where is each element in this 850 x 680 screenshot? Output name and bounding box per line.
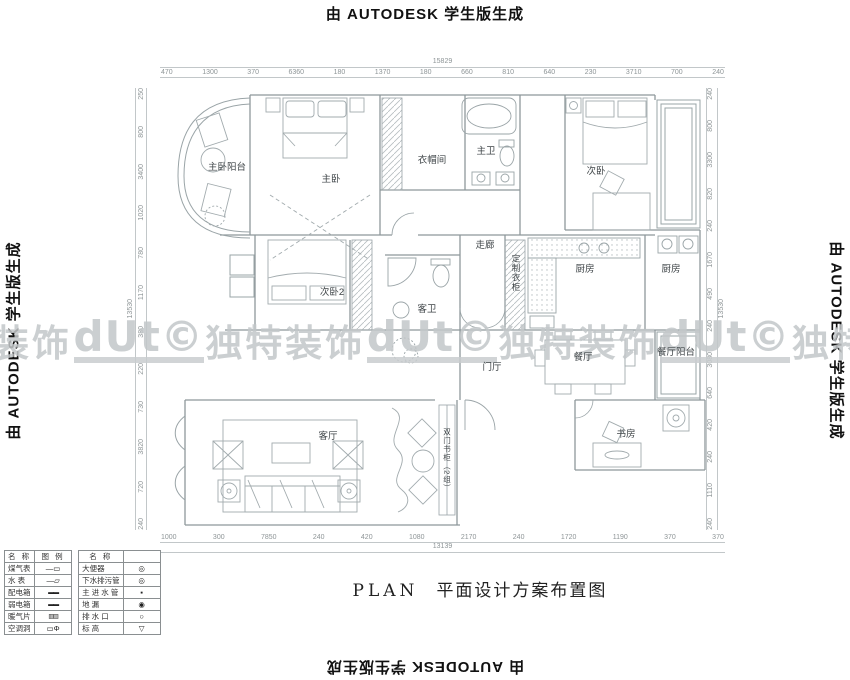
- plant: [392, 338, 416, 362]
- floorplan-drawing: 主卧阳台 主卧 衣帽间 主卫 次卧 走廊 定制衣柜 厨房 厨房 次卧2 客卫 门…: [160, 88, 725, 533]
- legend-header-name: 名 称: [5, 551, 35, 563]
- dimension-value: 810: [501, 69, 515, 77]
- legend-item: 弱电箱: [5, 599, 35, 611]
- dimension-value: 730: [138, 401, 146, 413]
- room-label-study: 书房: [616, 426, 635, 440]
- dimension-bottom-row: 1000300785024042010802170240172011903703…: [160, 533, 725, 543]
- dimension-top-total: 15829: [160, 58, 725, 68]
- dimension-value: 250: [138, 88, 146, 100]
- watermark-autodesk-top: 由 AUTODESK 学生版生成: [0, 3, 850, 24]
- dimension-value: 240: [711, 69, 725, 77]
- dimension-value: 6360: [288, 69, 306, 77]
- living-furniture: [213, 408, 437, 512]
- washbasin: [393, 302, 409, 318]
- pillow: [272, 286, 306, 300]
- dimension-value: 3820: [138, 439, 146, 455]
- room-label-living: 客厅: [318, 428, 337, 442]
- dimension-value: 240: [138, 518, 146, 530]
- legend-item: 配电箱: [5, 587, 35, 599]
- dimension-value: 420: [360, 534, 374, 542]
- floorplan-page: 由 AUTODESK 学生版生成 由 AUTODESK 学生版生成 由 AUTO…: [0, 0, 850, 680]
- dimension-value: 13530: [127, 299, 135, 318]
- drawing-title: PLAN平面设计方案布置图: [110, 576, 850, 601]
- dimension-top-row: 4701300370636018013701806608106402303710…: [160, 68, 725, 78]
- dimension-value: 370: [663, 534, 677, 542]
- ceiling-cross-lines: [270, 195, 370, 260]
- nightstand: [266, 98, 280, 112]
- round-table: [412, 450, 434, 472]
- legend-item: 标 高: [79, 623, 124, 635]
- living-bay-arc-2: [175, 466, 185, 500]
- legend-left-table: 名 称 图 例 煤气表 —▭ 水 表 —▱ 配电箱 ▬▬ 弱电箱 ▬▬ 暖气片 …: [4, 550, 72, 635]
- room-label-guest-bath: 客卫: [417, 301, 436, 315]
- master-bedroom-furniture: [266, 98, 370, 260]
- room-label-kitchen: 厨房: [575, 261, 594, 275]
- living-bay-arc-1: [175, 416, 185, 450]
- room-label-master-bedroom: 主卧: [321, 171, 340, 185]
- bedroom2-furniture: [566, 98, 650, 230]
- legend-header-name2: 名 称: [79, 551, 124, 563]
- dimension-left-total: 13530: [127, 88, 136, 530]
- window-seat-2: [230, 277, 254, 297]
- room-label-dining: 餐厅: [573, 349, 592, 363]
- dimension-value: 300: [212, 534, 226, 542]
- dimension-value: 470: [160, 69, 174, 77]
- sink-right: [679, 236, 698, 253]
- dimension-value: 230: [584, 69, 598, 77]
- toilet: [500, 146, 514, 166]
- dimension-value: 2170: [460, 534, 478, 542]
- room-label-bedroom3: 次卧2: [320, 284, 344, 298]
- room-label-master-bath: 主卫: [476, 143, 495, 157]
- dimension-value: 1370: [374, 69, 392, 77]
- kitchen-fixtures: [528, 236, 698, 328]
- room-label-master-balcony: 主卧阳台: [208, 159, 246, 173]
- dimension-value: 3400: [138, 164, 146, 180]
- watermark-autodesk-bottom: 由 AUTODESK 学生版生成: [0, 657, 850, 678]
- study-desk: [593, 443, 641, 467]
- dimension-value: 240: [312, 534, 326, 542]
- room-label-kitchen-balcony: 厨房: [661, 261, 680, 275]
- legend-item: 大便器: [79, 563, 124, 575]
- balcony-chair: [201, 184, 231, 217]
- dimension-value: 370: [711, 534, 725, 542]
- dimension-value: 180: [333, 69, 347, 77]
- room-label-foyer: 门厅: [482, 359, 501, 373]
- room-label-custom-wardrobe: 定制衣柜: [510, 254, 522, 292]
- dimension-left-row: 2508003400102078011703802207303820720240: [138, 88, 147, 530]
- legend-item: 暖气片: [5, 611, 35, 623]
- dimension-value: 800: [138, 126, 146, 138]
- dimension-value: 220: [138, 363, 146, 375]
- dimension-value: 380: [138, 326, 146, 338]
- dining-chair: [555, 384, 571, 394]
- dimension-value: 240: [512, 534, 526, 542]
- weak-current-box-symbol: ▬▬: [35, 599, 72, 611]
- sink-left: [658, 236, 677, 253]
- dimension-value: 660: [460, 69, 474, 77]
- legend-item: 水 表: [5, 575, 35, 587]
- toilet-symbol: ◎: [123, 563, 160, 575]
- dimensions-top: 15829 4701300370636018013701806608106402…: [160, 58, 725, 78]
- kitchen-counter-top: [528, 238, 640, 258]
- gas-meter-symbol: —▭: [35, 563, 72, 575]
- dimension-value: 370: [246, 69, 260, 77]
- drawing-title-cn: 平面设计方案布置图: [436, 581, 607, 601]
- dimension-value: 1020: [138, 205, 146, 221]
- dining-balcony-window: [657, 332, 700, 398]
- toilet-tank: [431, 259, 450, 265]
- water-meter-symbol: —▱: [35, 575, 72, 587]
- toilet: [433, 265, 449, 287]
- dimension-value: 1720: [560, 534, 578, 542]
- dining-chair: [595, 330, 611, 340]
- dimension-value: 720: [138, 481, 146, 493]
- room-label-cloakroom: 衣帽间: [418, 152, 447, 166]
- dimension-value: 1300: [201, 69, 219, 77]
- kitchen-cabinet: [530, 316, 554, 328]
- pillow: [318, 101, 346, 117]
- dining-chair: [555, 330, 571, 340]
- pillow: [586, 101, 614, 117]
- dimension-value: 180: [419, 69, 433, 77]
- dining-chair: [535, 350, 545, 366]
- room-label-dining-balcony: 餐厅阳台: [657, 344, 695, 358]
- desk2: [593, 193, 650, 230]
- entry-door: [465, 400, 495, 430]
- watermark-autodesk-right: 由 AUTODESK 学生版生成: [827, 231, 848, 451]
- nightstand: [566, 98, 581, 113]
- dimensions-bottom: 1000300785024042010802170240172011903703…: [160, 533, 725, 553]
- dimension-value: 700: [670, 69, 684, 77]
- watermark-autodesk-left: 由 AUTODESK 学生版生成: [3, 231, 24, 451]
- pillow: [286, 101, 314, 117]
- legend-item: 空调洞: [5, 623, 35, 635]
- dimension-value: 640: [543, 69, 557, 77]
- cloakroom-wardrobe-hatch: [382, 98, 402, 190]
- room-label-bedroom2: 次卧: [586, 163, 605, 177]
- bathtub: [462, 98, 516, 134]
- legend-item: 煤气表: [5, 563, 35, 575]
- dimension-value: 1000: [160, 534, 178, 542]
- bed2: [583, 98, 647, 164]
- dining-chair: [595, 384, 611, 394]
- leisure-chair: [408, 419, 436, 447]
- pillow: [618, 101, 646, 117]
- shower: [388, 258, 416, 286]
- coffee-table: [272, 443, 310, 463]
- dimension-bottom-total: 13139: [160, 543, 725, 553]
- balcony-chair: [196, 113, 227, 147]
- drain-outlet-symbol: ○: [123, 611, 160, 623]
- nightstand: [350, 98, 364, 112]
- room-label-corridor: 走廊: [475, 237, 494, 251]
- legend-item: 排 水 口: [79, 611, 124, 623]
- distribution-box-symbol: ▬▬: [35, 587, 72, 599]
- bed-master: [283, 98, 347, 158]
- legend-header-symbol2: [123, 551, 160, 563]
- dimensions-left: 13530 2508003400102078011703802207303820…: [127, 88, 147, 530]
- elevation-symbol: ▽: [123, 623, 160, 635]
- ac-hole-symbol: ▭Φ: [35, 623, 72, 635]
- dimension-value: 1170: [138, 285, 146, 300]
- leisure-chair: [409, 476, 437, 504]
- drawing-title-en: PLAN: [353, 581, 419, 601]
- radiator-symbol: ▥▥: [35, 611, 72, 623]
- study-furniture: [593, 405, 689, 467]
- dimension-value: 1080: [408, 534, 426, 542]
- kitchen-counter-side: [528, 258, 556, 313]
- dimension-value: 7850: [260, 534, 278, 542]
- dining-chair: [625, 350, 635, 366]
- legend-header-symbol: 图 例: [35, 551, 72, 563]
- bedroom3-wardrobe-hatch: [352, 240, 372, 330]
- window-seat-1: [230, 255, 254, 275]
- dimension-value: 3710: [625, 69, 643, 77]
- master-bath-fixtures: [462, 98, 516, 185]
- decorative-screen: [392, 408, 408, 512]
- bay-window-right: [657, 100, 700, 228]
- dimension-value: 1190: [612, 534, 629, 542]
- room-label-bookcase: 双门书柜（2组）: [442, 428, 453, 493]
- dimension-value: 780: [138, 247, 146, 259]
